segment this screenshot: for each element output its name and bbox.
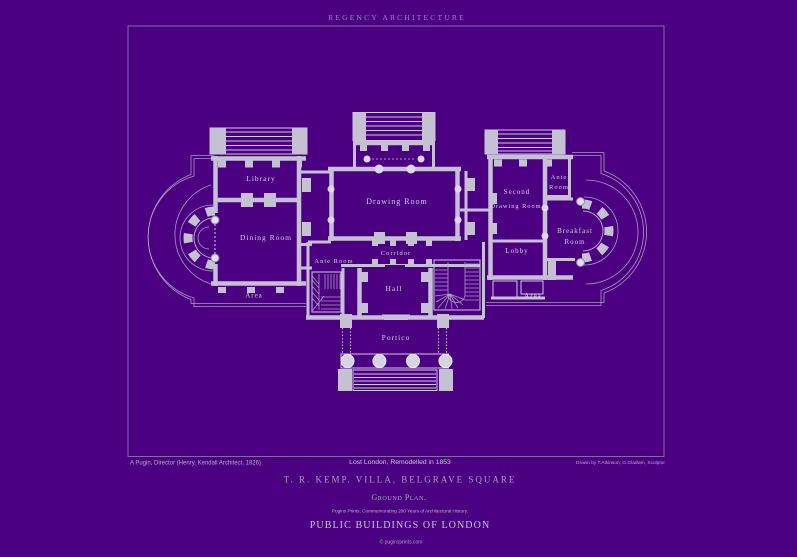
svg-text:Library: Library	[246, 174, 276, 183]
svg-text:REGENCY ARCHITECTURE: REGENCY ARCHITECTURE	[328, 13, 466, 22]
svg-text:Hall: Hall	[386, 284, 403, 293]
svg-text:Room: Room	[564, 238, 585, 246]
svg-text:Pugins Prints, Commemorating 2: Pugins Prints, Commemorating 200 Years o…	[332, 509, 468, 514]
svg-text:Area: Area	[245, 292, 263, 300]
svg-text:Ante Room: Ante Room	[314, 258, 353, 265]
svg-text:GROUND PLAN.: GROUND PLAN.	[372, 493, 427, 502]
svg-text:Area: Area	[524, 292, 542, 300]
svg-text:Drawing Room: Drawing Room	[366, 197, 428, 206]
svg-text:Room: Room	[549, 184, 569, 191]
svg-text:Corridor: Corridor	[381, 250, 411, 257]
svg-text:Dining Room: Dining Room	[240, 233, 292, 242]
svg-text:Lobby: Lobby	[505, 247, 528, 255]
svg-text:PUBLIC BUILDINGS OF LONDON: PUBLIC BUILDINGS OF LONDON	[310, 520, 491, 531]
svg-text:Lost London, Remodelled in 185: Lost London, Remodelled in 1853	[349, 459, 451, 466]
svg-text:Drawing Room: Drawing Room	[490, 203, 541, 210]
svg-text:T. R. KEMP. VILLA, BELGRAVE SQ: T. R. KEMP. VILLA, BELGRAVE SQUARE	[284, 475, 517, 485]
svg-text:Portico: Portico	[382, 333, 411, 342]
svg-text:Breakfast: Breakfast	[557, 227, 593, 235]
svg-text:© puginsprints.com: © puginsprints.com	[380, 539, 423, 546]
svg-text:A Pugin, Director (Henry, Kend: A Pugin, Director (Henry, Kendall Archit…	[130, 461, 261, 467]
svg-text:Second: Second	[504, 188, 531, 196]
svg-text:Ante: Ante	[551, 174, 568, 181]
svg-text:Drawn by T.Atkinson; G.Gladwin: Drawn by T.Atkinson; G.Gladwin, Sculptor	[576, 460, 665, 466]
